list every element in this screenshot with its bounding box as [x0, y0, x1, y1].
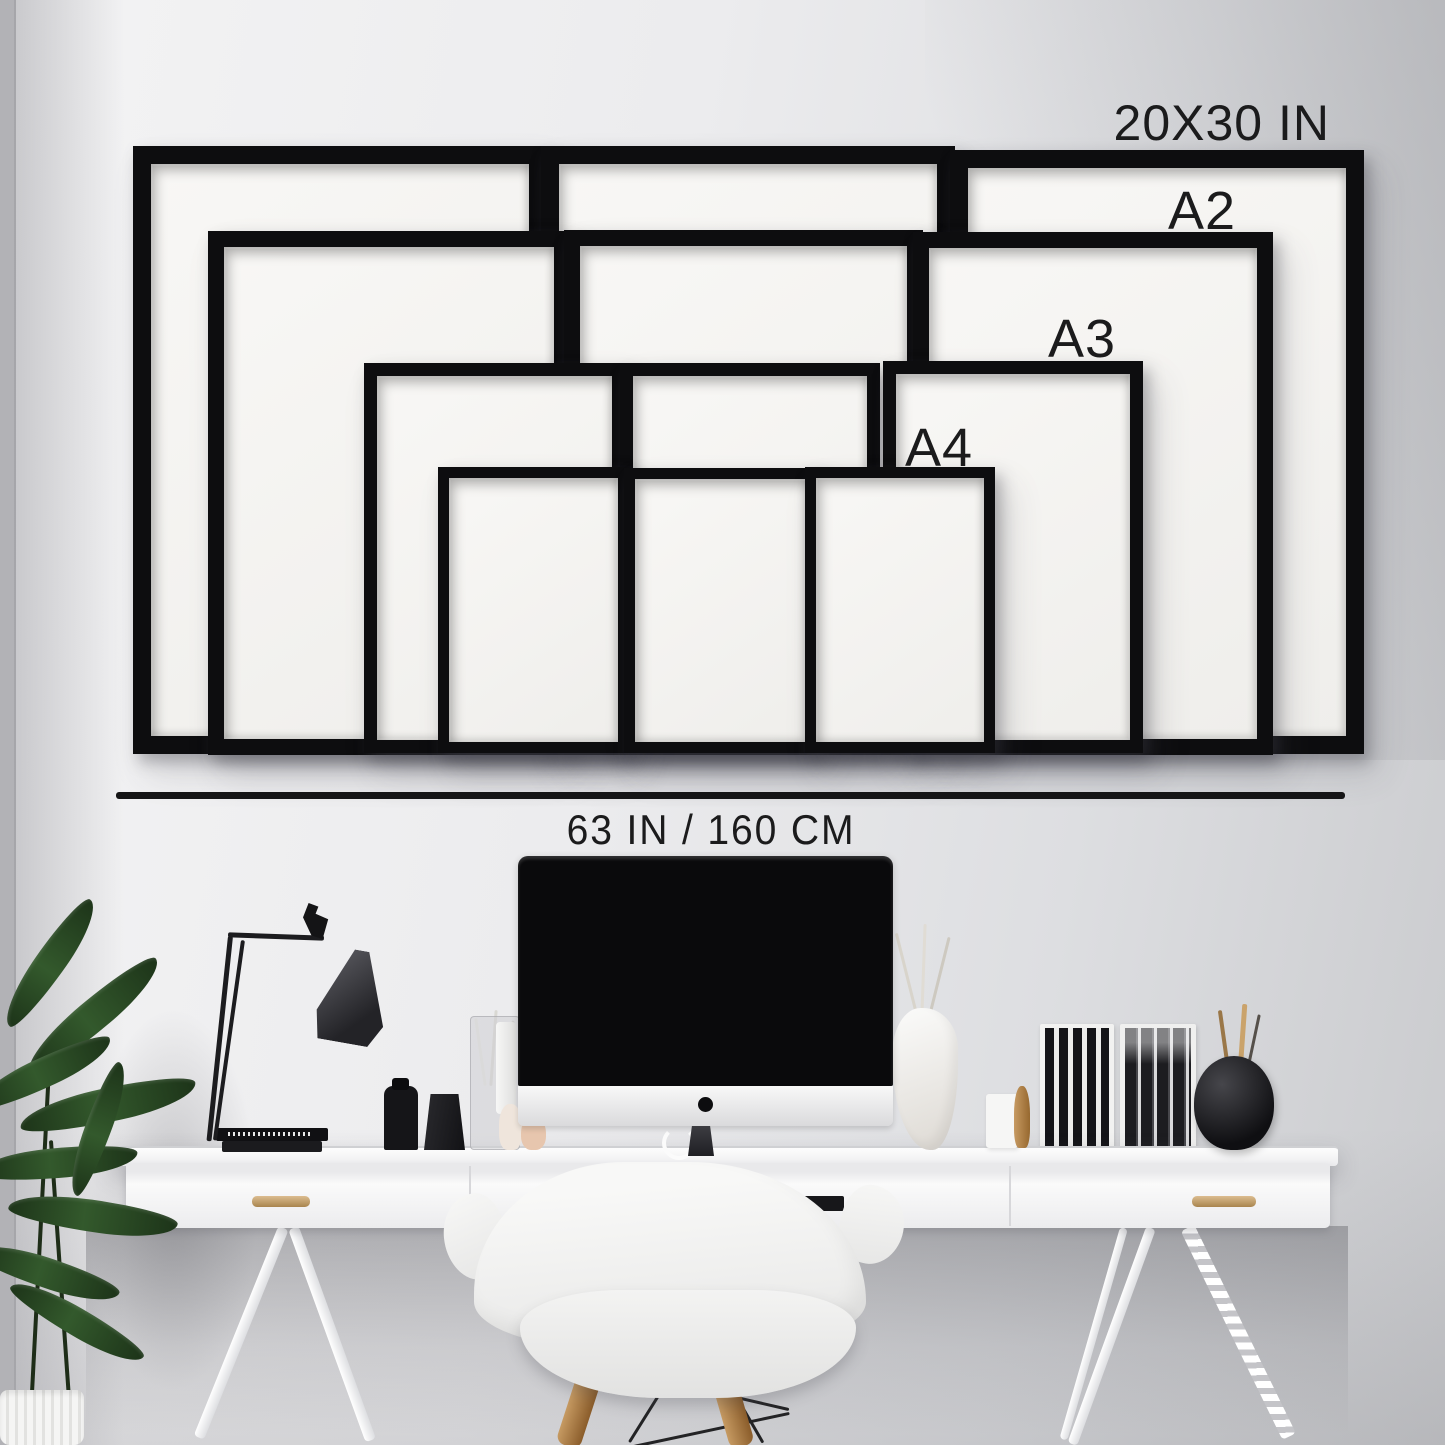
frame-a4-right — [805, 467, 995, 753]
white-sculpture-vase — [892, 1008, 958, 1150]
magazine-file-right — [1120, 1024, 1196, 1150]
white-column-object — [496, 1022, 516, 1114]
book-stack-top — [222, 1141, 322, 1152]
magazine-file-left — [1040, 1024, 1114, 1150]
book-spine-text — [228, 1132, 312, 1136]
frame-a4-left — [438, 467, 629, 753]
black-bottle — [384, 1086, 418, 1150]
lamp-shade — [310, 944, 397, 1049]
label-a4: A4 — [905, 417, 973, 479]
lamp-joint-clamp — [303, 903, 331, 939]
label-a3: A3 — [1048, 308, 1116, 370]
black-angular-vase — [424, 1094, 465, 1150]
wooden-figurine — [1014, 1086, 1030, 1148]
drawer-handle-right — [1192, 1196, 1256, 1207]
frame-size-guide-image: 20X30 IN A2 A3 A4 63 IN / 160 CM — [0, 0, 1445, 1445]
frame-a4-center — [624, 468, 818, 753]
black-books-streaked — [1125, 1028, 1191, 1148]
label-20x30: 20X30 IN — [1090, 94, 1330, 152]
drawer-handle-left — [252, 1196, 310, 1207]
plant-pot — [0, 1390, 84, 1445]
width-ruler-line — [116, 792, 1345, 799]
dried-sprig — [920, 924, 926, 1016]
black-bottle-cap — [392, 1078, 409, 1090]
black-round-vase — [1194, 1056, 1274, 1150]
imac-logo-dot — [698, 1097, 713, 1112]
imac-stand — [688, 1126, 714, 1156]
black-books — [1045, 1028, 1109, 1148]
label-a2: A2 — [1168, 180, 1236, 242]
dried-sprig — [895, 933, 918, 1015]
imac-screen — [518, 856, 893, 1086]
wall-width-label: 63 IN / 160 CM — [479, 806, 944, 854]
dried-sprig — [928, 937, 950, 1015]
drawer-divider-right — [1009, 1166, 1011, 1226]
